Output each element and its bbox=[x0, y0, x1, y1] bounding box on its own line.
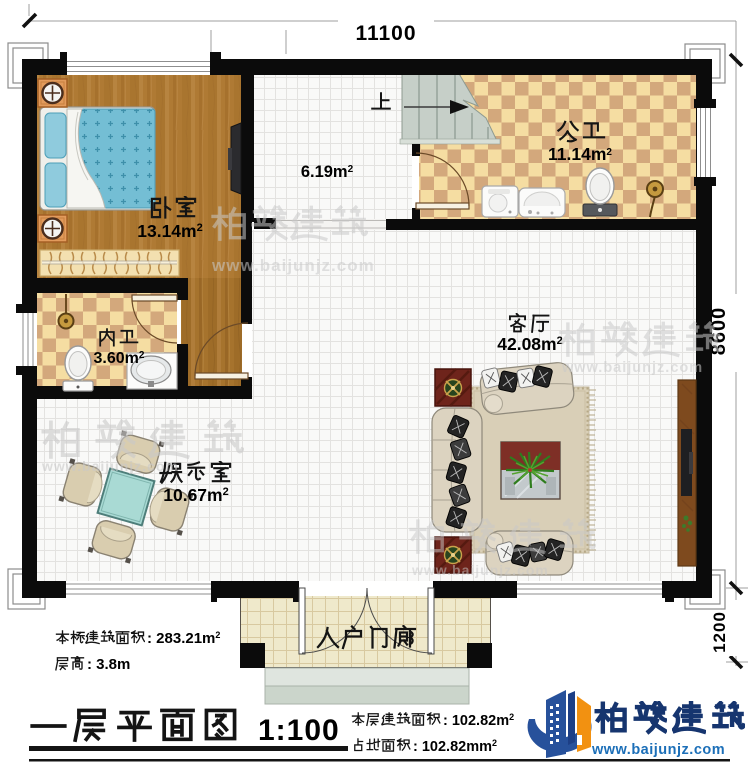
svg-text:: 283.21m2: : 283.21m2 bbox=[147, 630, 220, 647]
svg-text:10.67m2: 10.67m2 bbox=[163, 485, 228, 505]
svg-text:: 3.8m: : 3.8m bbox=[87, 656, 130, 673]
svg-text:www.baijunjz.com: www.baijunjz.com bbox=[561, 360, 703, 376]
svg-text:11100: 11100 bbox=[355, 22, 416, 45]
svg-text:42.08m2: 42.08m2 bbox=[497, 334, 562, 354]
svg-text:www.baijunjz.com: www.baijunjz.com bbox=[591, 742, 725, 758]
svg-text:: 102.82mm2: : 102.82mm2 bbox=[413, 738, 497, 755]
svg-text:1:100: 1:100 bbox=[258, 714, 340, 747]
svg-text:3.60m2: 3.60m2 bbox=[94, 350, 145, 367]
svg-text:11.14m2: 11.14m2 bbox=[548, 144, 612, 164]
svg-text:www.baijunjz.com: www.baijunjz.com bbox=[211, 256, 375, 275]
svg-text:6.19m2: 6.19m2 bbox=[301, 163, 354, 181]
svg-text:www.baijunjz.com: www.baijunjz.com bbox=[41, 458, 179, 474]
svg-text:13.14m2: 13.14m2 bbox=[137, 221, 202, 241]
svg-text:1200: 1200 bbox=[710, 611, 729, 653]
svg-text:: 102.82m2: : 102.82m2 bbox=[443, 712, 514, 729]
svg-text:www.baijunjz.com: www.baijunjz.com bbox=[411, 562, 549, 578]
